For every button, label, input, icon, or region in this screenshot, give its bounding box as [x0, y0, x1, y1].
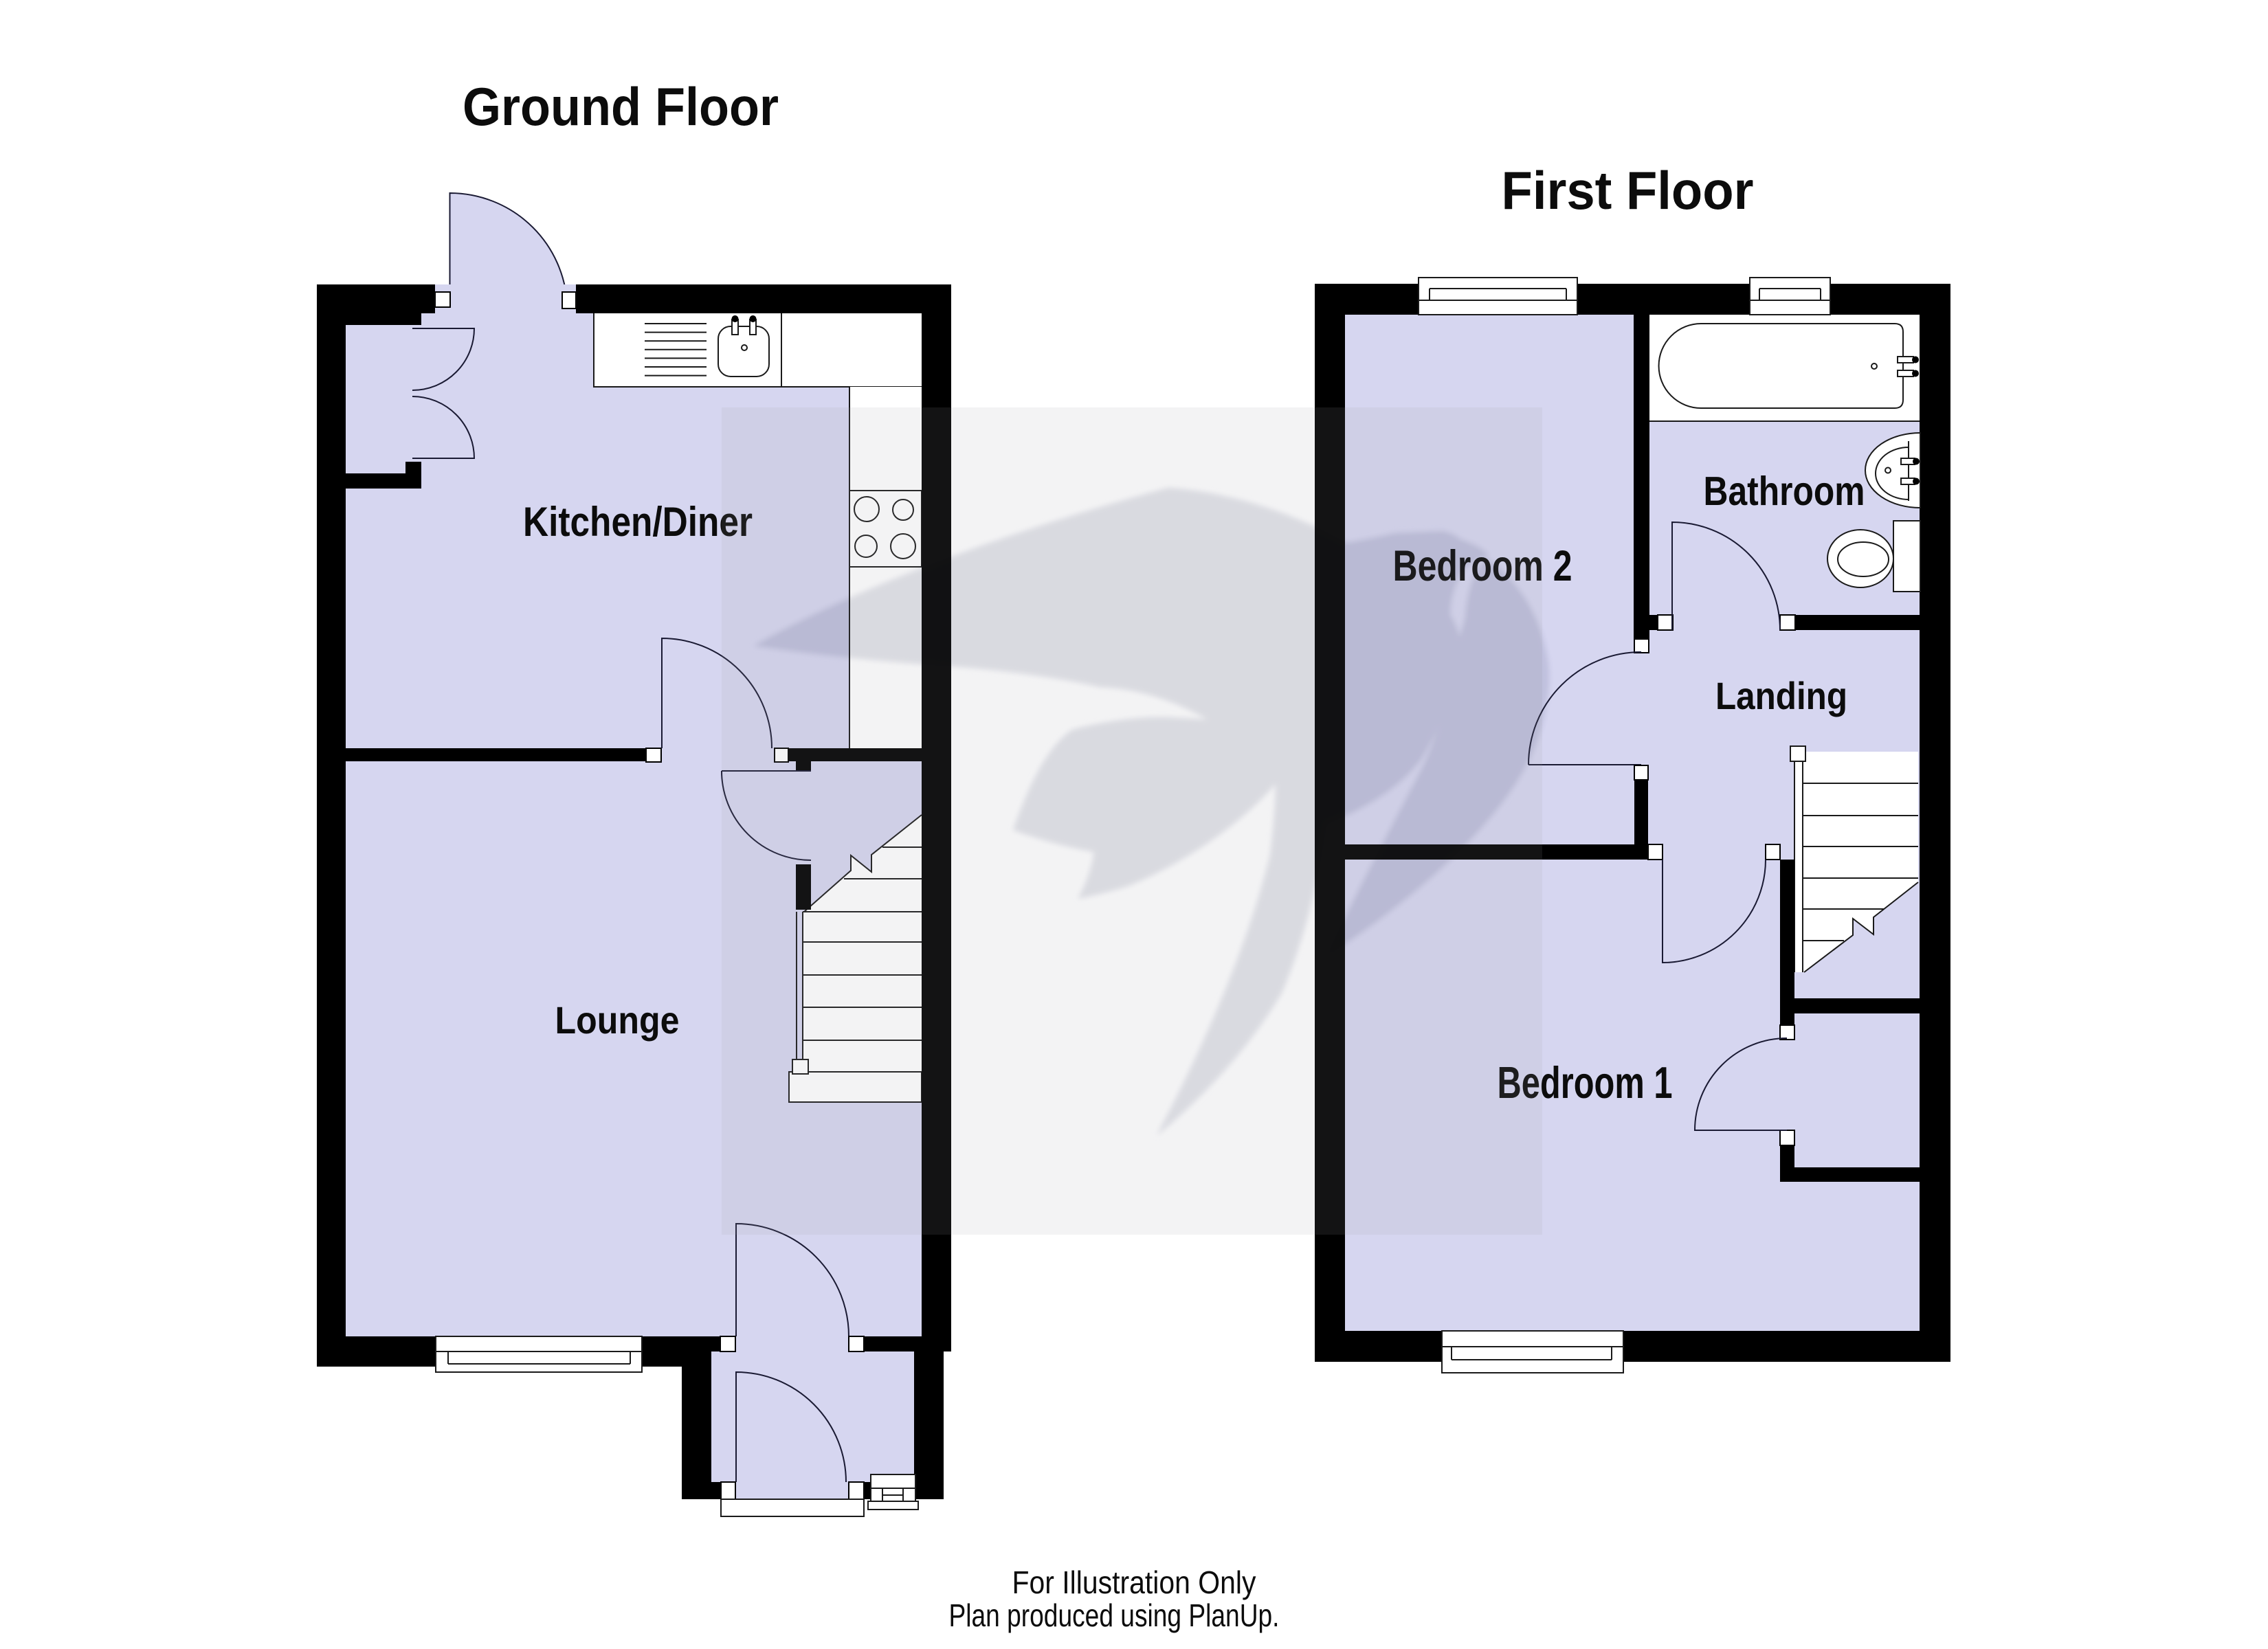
svg-text:Landing: Landing [1715, 674, 1847, 717]
svg-text:Kitchen/Diner: Kitchen/Diner [523, 499, 753, 545]
svg-text:Plan produced using PlanUp.: Plan produced using PlanUp. [949, 1597, 1280, 1633]
svg-text:First Floor: First Floor [1502, 160, 1754, 221]
svg-text:Ground Floor: Ground Floor [463, 76, 779, 137]
svg-text:Bathroom: Bathroom [1704, 469, 1865, 514]
svg-text:Lounge: Lounge [555, 998, 680, 1042]
svg-text:For Illustration Only: For Illustration Only [1012, 1564, 1256, 1600]
